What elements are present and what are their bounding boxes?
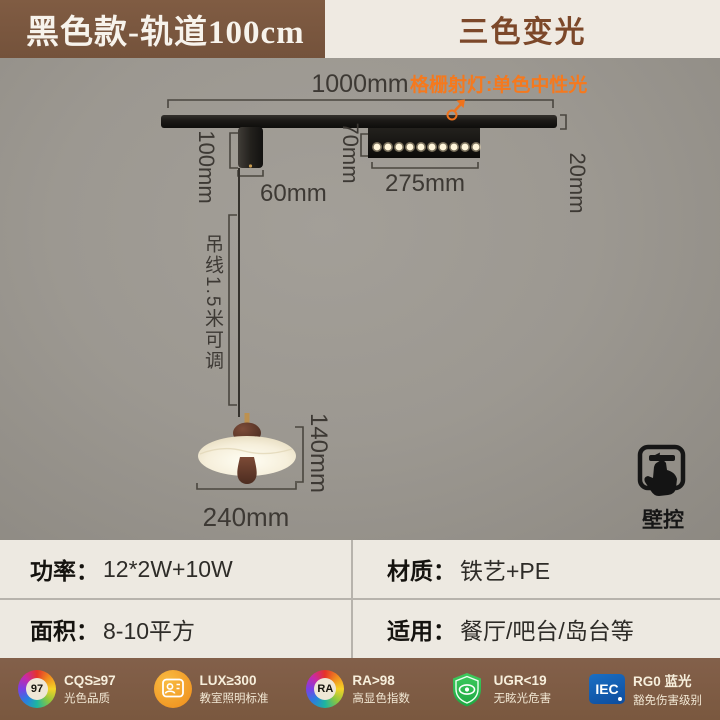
spec-value: 铁艺+PE: [460, 552, 550, 586]
cert-line2: 豁免伤害级别: [633, 692, 702, 708]
cqs-color-quality-icon: 97: [18, 670, 56, 708]
spec-cell-area: 面积： 8-10平方: [0, 600, 351, 658]
spec-label: 材质：: [387, 552, 456, 586]
spec-value: 8-10平方: [103, 612, 195, 646]
cert-item-ra: RA RA>98 高显色指数: [306, 670, 410, 708]
cert-item-cqs: 97 CQS≥97 光色品质: [18, 670, 116, 708]
spotlight-note-label: 格栅射灯:单色中性光: [410, 70, 587, 97]
dim-spotlight-length-label: 275mm: [385, 170, 465, 198]
cert-line1: RG0 蓝光: [633, 670, 702, 690]
spec-label: 面积：: [30, 612, 99, 646]
spec-value: 12*2W+10W: [103, 556, 233, 583]
spec-value: 餐厅/吧台/岛台等: [460, 612, 634, 646]
wall-switch-icon: [640, 447, 683, 496]
dim-spotlight-height-label: 70mm: [337, 122, 363, 183]
cert-text: CQS≥97 光色品质: [64, 673, 116, 706]
feature-banner: 三色变光: [325, 0, 720, 58]
dimension-diagram: 1000mm 格栅射灯:单色中性光 20mm 100mm 60mm 70mm 2…: [0, 58, 720, 540]
cqs-badge: 97: [26, 678, 48, 700]
dimension-brackets: [168, 100, 566, 489]
bracket-track-height: [560, 115, 566, 129]
press-hand-icon: [644, 460, 677, 496]
dim-track-height-label: 20mm: [564, 152, 590, 213]
bracket-track-length: [168, 100, 553, 108]
variant-banner: 黑色款-轨道100cm: [0, 0, 325, 58]
iec-badge: IEC: [595, 681, 618, 697]
bracket-lamp-height: [295, 427, 303, 482]
spec-cell-usage: 适用： 餐厅/吧台/岛台等: [353, 600, 720, 658]
cert-line1: UGR<19: [494, 673, 552, 688]
dim-lamp-height-label: 140mm: [304, 413, 332, 493]
feature-title: 三色变光: [459, 7, 587, 51]
wall-control-label: 壁控: [642, 504, 684, 534]
spec-cell-power: 功率： 12*2W+10W: [0, 540, 351, 598]
pendant-mount: [238, 127, 263, 168]
lamp-wood-cone: [237, 457, 256, 484]
cert-line2: 无眩光危害: [494, 690, 552, 706]
spec-label: 功率：: [30, 552, 99, 586]
classroom-lighting-icon: [154, 670, 192, 708]
wire-note-label: 吊线1.5米可调: [199, 234, 226, 371]
cert-line2: 光色品质: [64, 690, 116, 706]
cert-item-lux: LUX≥300 教室照明标准: [154, 670, 269, 708]
bracket-spotlight-length: [372, 162, 478, 168]
anti-glare-shield-icon: [448, 670, 486, 708]
dim-mount-width-label: 60mm: [260, 180, 327, 208]
pendant-lamp: [198, 413, 296, 484]
bracket-mount-height: [230, 133, 238, 168]
cert-line1: LUX≥300: [200, 673, 269, 688]
bracket-mount-width: [238, 170, 263, 176]
spec-table: 功率： 12*2W+10W 材质： 铁艺+PE 面积： 8-10平方 适用： 餐…: [0, 540, 720, 658]
product-infographic: 黑色款-轨道100cm 三色变光: [0, 0, 720, 720]
variant-title: 黑色款-轨道100cm: [26, 5, 305, 53]
ra-color-wheel-icon: RA: [306, 670, 344, 708]
spec-label: 适用：: [387, 612, 456, 646]
dim-track-length-label: 1000mm: [311, 70, 408, 99]
cert-text: RG0 蓝光 豁免伤害级别: [633, 670, 702, 708]
header: 黑色款-轨道100cm 三色变光: [0, 0, 720, 58]
cert-line1: RA>98: [352, 673, 410, 688]
ra-badge: RA: [314, 678, 336, 700]
bracket-wire-length: [229, 215, 237, 405]
dim-mount-height-label: 100mm: [193, 130, 219, 203]
mount-gold-tip: [249, 164, 252, 167]
dim-lamp-width-label: 240mm: [203, 502, 290, 533]
cert-text: UGR<19 无眩光危害: [494, 673, 552, 706]
certification-bar: 97 CQS≥97 光色品质 LUX≥300 教室照明标准: [0, 658, 720, 720]
spec-cell-material: 材质： 铁艺+PE: [353, 540, 720, 598]
iec-logo-icon: IEC: [589, 674, 625, 704]
cert-item-ugr: UGR<19 无眩光危害: [448, 670, 552, 708]
cert-line2: 高显色指数: [352, 690, 410, 706]
cert-line2: 教室照明标准: [200, 690, 269, 706]
cert-item-iec: IEC RG0 蓝光 豁免伤害级别: [589, 670, 702, 708]
cert-text: RA>98 高显色指数: [352, 673, 410, 706]
cert-line1: CQS≥97: [64, 673, 116, 688]
cert-text: LUX≥300 教室照明标准: [200, 673, 269, 706]
